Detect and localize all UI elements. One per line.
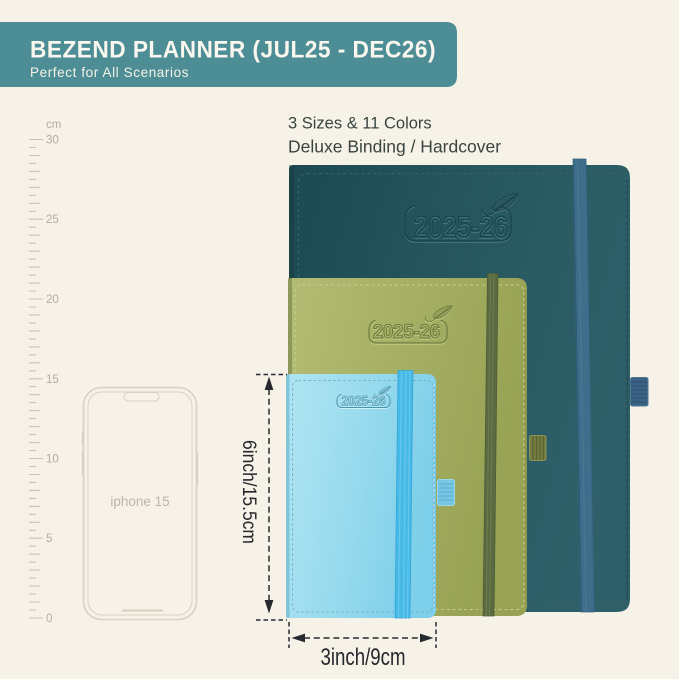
svg-text:5: 5 [46,533,52,545]
svg-text:cm: cm [46,119,61,131]
svg-text:iphone 15: iphone 15 [110,494,169,509]
svg-text:20: 20 [46,294,59,306]
svg-text:6inch/15.5cm: 6inch/15.5cm [238,440,260,544]
svg-text:2025-26: 2025-26 [373,321,440,343]
svg-text:BEZEND PLANNER (JUL25 - DEC26): BEZEND PLANNER (JUL25 - DEC26) [30,37,436,64]
svg-text:2025-26: 2025-26 [342,394,386,409]
svg-text:3inch/9cm: 3inch/9cm [321,644,406,671]
svg-text:0: 0 [46,613,52,625]
svg-text:3 Sizes & 11 Colors: 3 Sizes & 11 Colors [288,115,432,133]
svg-text:25: 25 [46,214,59,226]
svg-text:Deluxe Binding / Hardcover: Deluxe Binding / Hardcover [288,137,501,157]
svg-text:15: 15 [46,374,59,386]
svg-text:2025-26: 2025-26 [414,211,508,244]
svg-text:10: 10 [46,454,59,466]
svg-text:Perfect for All Scenarios: Perfect for All Scenarios [30,65,189,80]
svg-text:30: 30 [46,135,59,147]
